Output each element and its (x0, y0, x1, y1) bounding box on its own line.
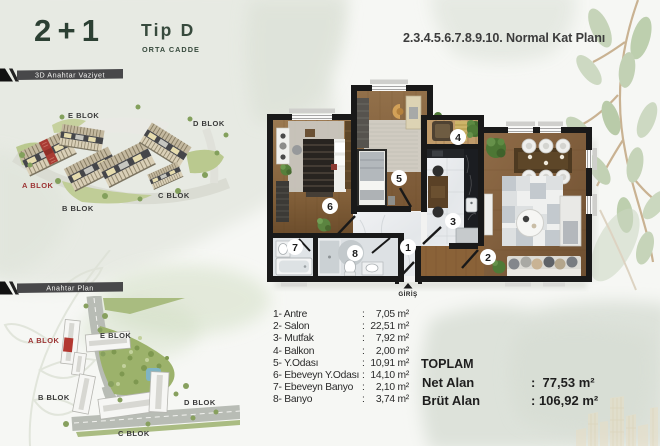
svg-text:4: 4 (455, 132, 461, 144)
svg-text:5: 5 (396, 173, 402, 185)
svg-text:6: 6 (327, 201, 333, 213)
svg-text:7: 7 (292, 242, 298, 254)
svg-text:Anahtar Plan: Anahtar Plan (46, 284, 94, 293)
svg-text:3: 3 (450, 216, 456, 228)
svg-text:GİRİŞ: GİRİŞ (398, 291, 417, 298)
svg-text:1: 1 (405, 242, 411, 254)
svg-text:8: 8 (352, 248, 358, 260)
svg-text:2: 2 (485, 252, 491, 264)
svg-text:3D Anahtar Vaziyet: 3D Anahtar Vaziyet (35, 71, 105, 80)
